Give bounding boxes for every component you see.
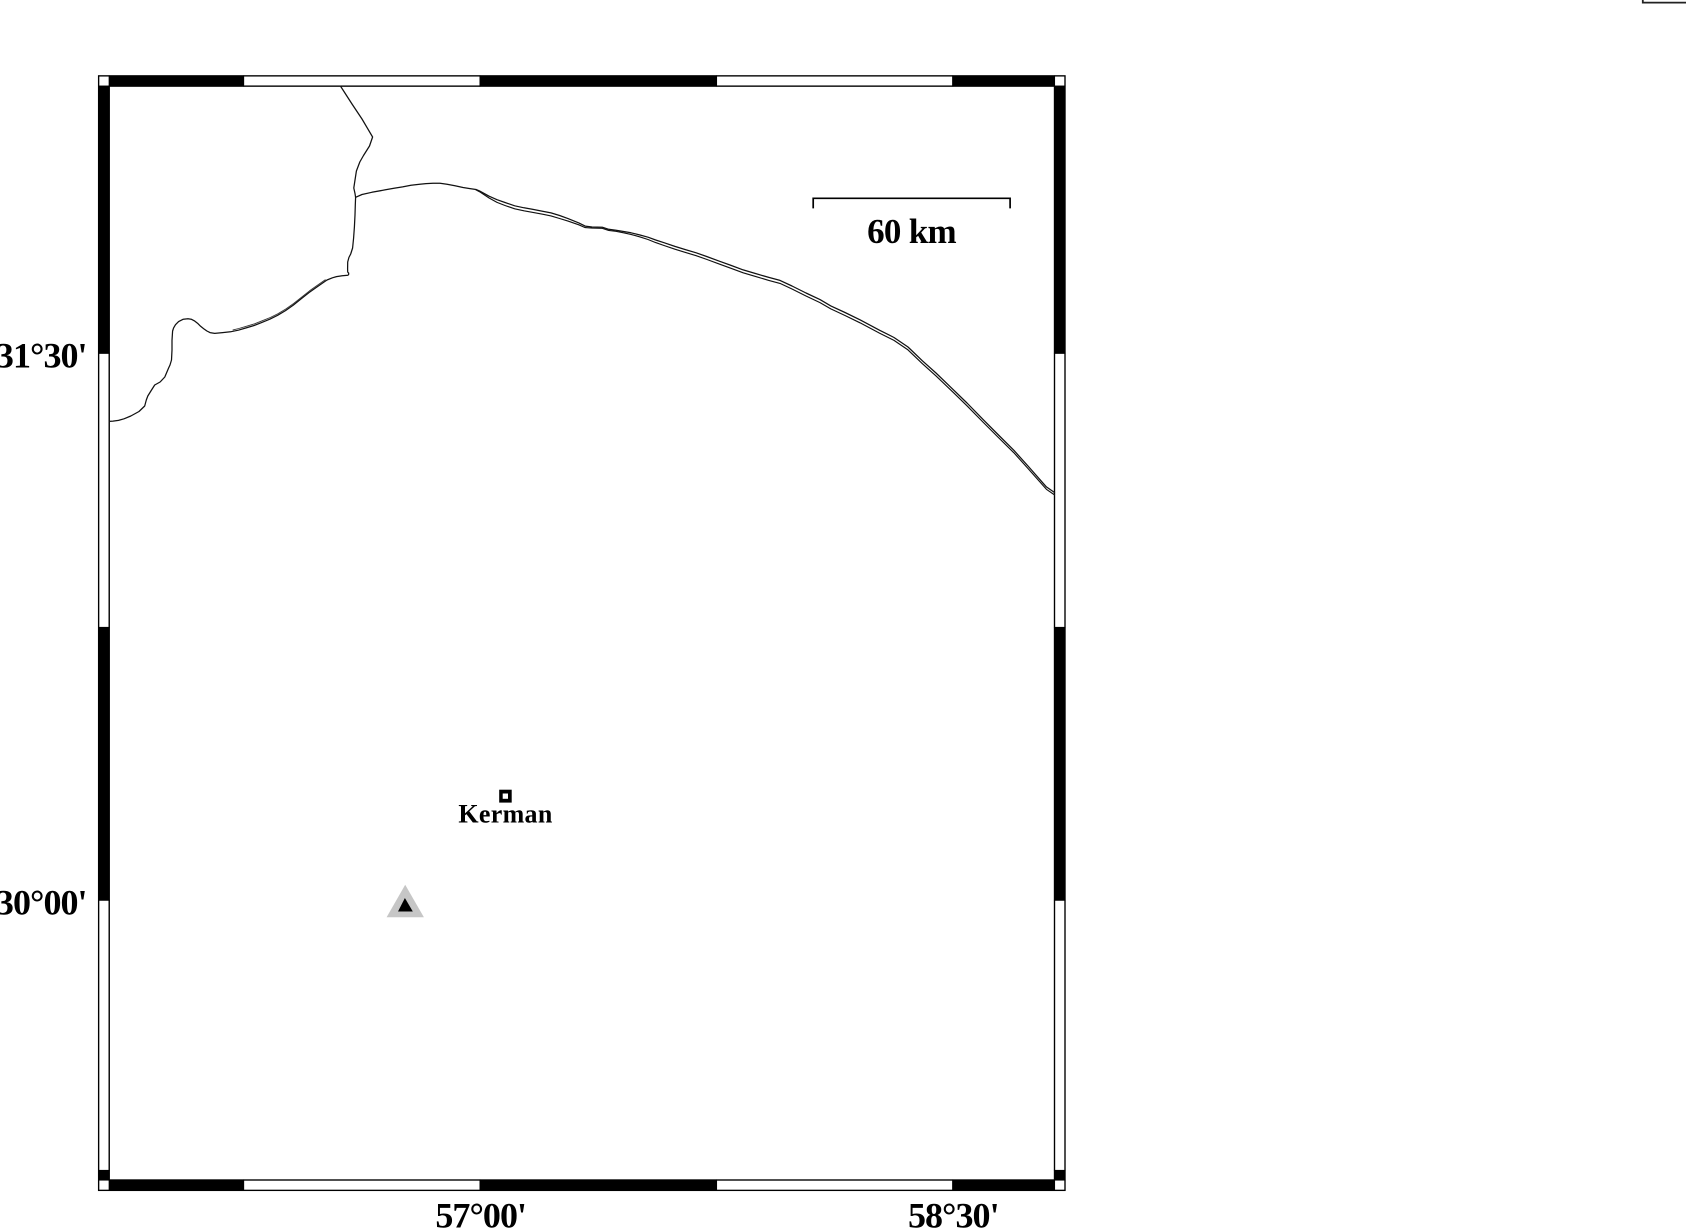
svg-text:58°30': 58°30' [908, 1195, 999, 1229]
svg-text:60 km: 60 km [867, 212, 956, 251]
svg-text:31°30': 31°30' [0, 335, 87, 375]
svg-text:Kerman: Kerman [458, 799, 552, 828]
svg-text:57°00': 57°00' [435, 1195, 526, 1229]
svg-text:30°00': 30°00' [0, 883, 87, 923]
